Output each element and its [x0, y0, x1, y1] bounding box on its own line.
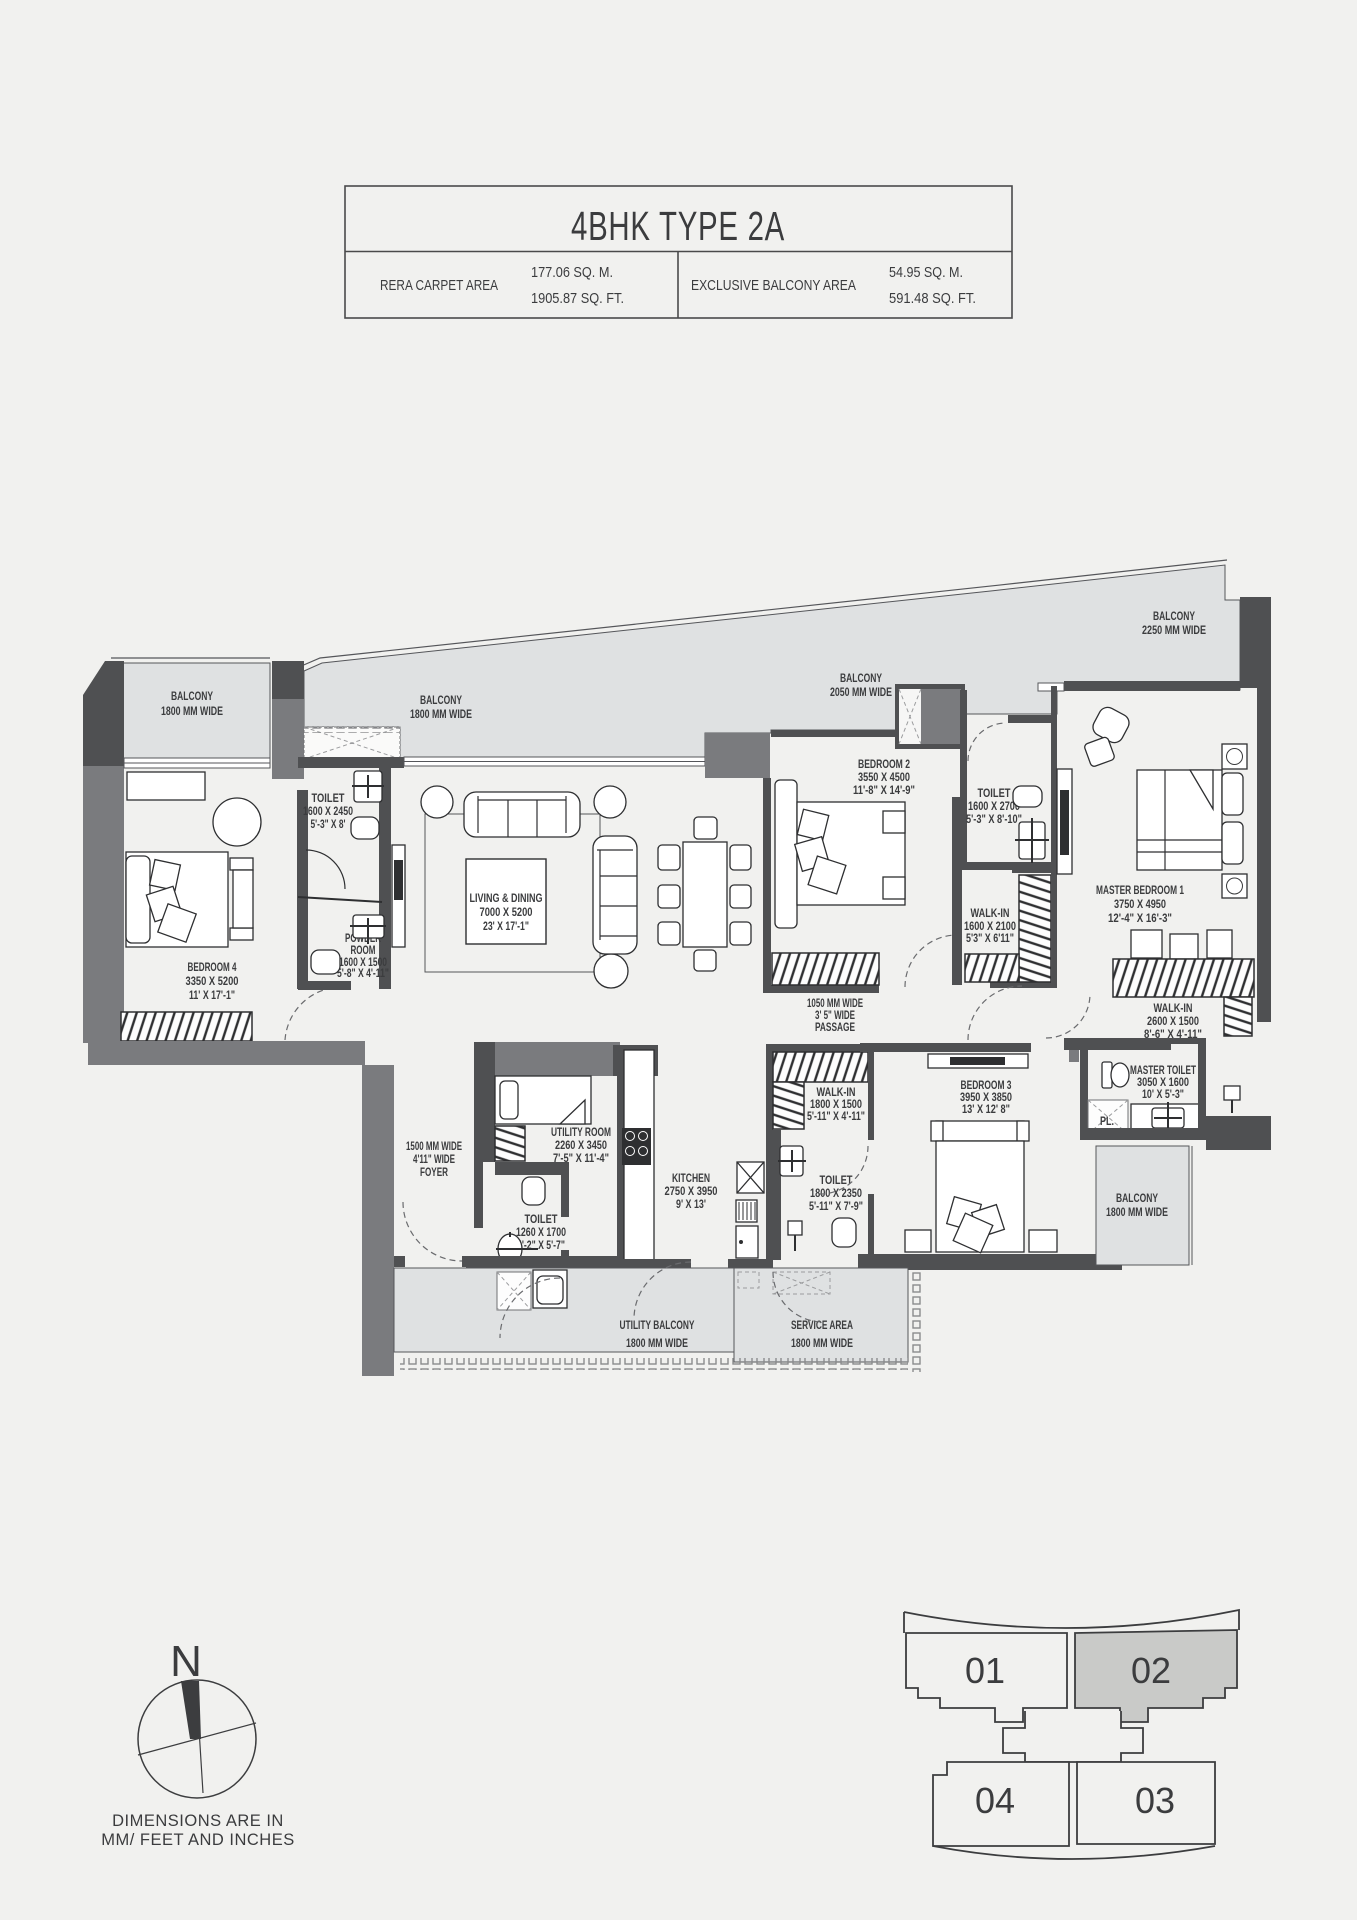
svg-text:PL.: PL.	[1100, 1116, 1114, 1128]
svg-text:1500 MM WIDE: 1500 MM WIDE	[406, 1141, 462, 1153]
svg-text:EXCLUSIVE BALCONY AREA: EXCLUSIVE BALCONY AREA	[691, 277, 856, 294]
svg-text:10' X 5'-3": 10' X 5'-3"	[1142, 1089, 1184, 1101]
svg-text:UTILITY ROOM: UTILITY ROOM	[551, 1127, 611, 1139]
svg-text:5'-11" X 7'-9": 5'-11" X 7'-9"	[809, 1201, 863, 1213]
svg-text:WALK-IN: WALK-IN	[817, 1087, 856, 1099]
svg-text:11'-8" X 14'-9": 11'-8" X 14'-9"	[853, 785, 915, 797]
svg-text:1600 X 2450: 1600 X 2450	[303, 806, 353, 818]
svg-text:3550 X 4500: 3550 X 4500	[858, 772, 910, 784]
svg-text:BALCONY: BALCONY	[1153, 611, 1195, 623]
svg-text:1905.87 SQ. FT.: 1905.87 SQ. FT.	[531, 290, 624, 307]
svg-text:BALCONY: BALCONY	[1116, 1193, 1158, 1205]
svg-text:54.95 SQ. M.: 54.95 SQ. M.	[889, 264, 963, 281]
svg-text:ROOM: ROOM	[351, 945, 376, 957]
svg-text:BALCONY: BALCONY	[840, 673, 882, 685]
svg-text:WALK-IN: WALK-IN	[971, 908, 1010, 920]
svg-text:1800 X 1500: 1800 X 1500	[810, 1099, 862, 1111]
svg-text:BALCONY: BALCONY	[420, 695, 462, 707]
svg-text:5'-8" X 4'-11": 5'-8" X 4'-11"	[337, 968, 389, 980]
svg-text:PASSAGE: PASSAGE	[815, 1022, 855, 1034]
svg-text:BALCONY: BALCONY	[171, 691, 213, 703]
svg-text:1800 MM WIDE: 1800 MM WIDE	[626, 1338, 688, 1350]
svg-text:5'-3" X 8'-10": 5'-3" X 8'-10"	[966, 814, 1022, 826]
svg-text:4'-2" X 5'-7": 4'-2" X 5'-7"	[517, 1240, 565, 1252]
svg-text:2260 X 3450: 2260 X 3450	[555, 1140, 607, 1152]
svg-text:04: 04	[975, 1780, 1015, 1821]
svg-text:FOYER: FOYER	[420, 1167, 448, 1179]
svg-text:23' X 17'-1": 23' X 17'-1"	[483, 921, 529, 933]
svg-text:UTILITY BALCONY: UTILITY BALCONY	[620, 1320, 695, 1332]
svg-text:5'-11" X 4'-11": 5'-11" X 4'-11"	[807, 1111, 865, 1123]
svg-text:BEDROOM 2: BEDROOM 2	[858, 759, 910, 771]
svg-text:3050 X 1600: 3050 X 1600	[1137, 1077, 1189, 1089]
svg-text:13' X 12' 8": 13' X 12' 8"	[962, 1104, 1010, 1116]
svg-text:MM/ FEET AND INCHES: MM/ FEET AND INCHES	[101, 1831, 294, 1849]
svg-text:9' X 13': 9' X 13'	[676, 1199, 706, 1211]
svg-text:1800 MM WIDE: 1800 MM WIDE	[161, 706, 223, 718]
svg-text:DIMENSIONS ARE IN: DIMENSIONS ARE IN	[112, 1812, 284, 1830]
svg-text:LIVING & DINING: LIVING & DINING	[470, 893, 543, 905]
svg-text:5'-3" X 8': 5'-3" X 8'	[311, 819, 346, 831]
svg-text:4BHK TYPE 2A: 4BHK TYPE 2A	[571, 203, 785, 249]
svg-text:03: 03	[1135, 1780, 1175, 1821]
svg-text:SERVICE AREA: SERVICE AREA	[791, 1320, 853, 1332]
svg-text:11' X 17'-1": 11' X 17'-1"	[189, 990, 235, 1002]
svg-text:1600 X 2100: 1600 X 2100	[964, 921, 1016, 933]
svg-text:1800 MM WIDE: 1800 MM WIDE	[1106, 1207, 1168, 1219]
svg-text:N: N	[170, 1637, 202, 1686]
svg-text:1050 MM WIDE: 1050 MM WIDE	[807, 998, 863, 1010]
svg-text:KITCHEN: KITCHEN	[672, 1173, 710, 1185]
svg-text:TOILET: TOILET	[525, 1214, 558, 1226]
svg-text:MASTER TOILET: MASTER TOILET	[1130, 1065, 1196, 1077]
svg-text:BEDROOM 3: BEDROOM 3	[961, 1080, 1012, 1092]
svg-text:1260 X 1700: 1260 X 1700	[516, 1227, 566, 1239]
svg-text:WALK-IN: WALK-IN	[1154, 1003, 1193, 1015]
svg-text:1600 X 2700: 1600 X 2700	[968, 801, 1020, 813]
svg-text:01: 01	[965, 1650, 1005, 1691]
svg-text:2600 X 1500: 2600 X 1500	[1147, 1016, 1199, 1028]
svg-text:7000 X 5200: 7000 X 5200	[480, 907, 533, 919]
svg-text:TOILET: TOILET	[978, 788, 1011, 800]
svg-text:2250 MM WIDE: 2250 MM WIDE	[1142, 625, 1206, 637]
svg-text:1800 X 2350: 1800 X 2350	[810, 1188, 862, 1200]
svg-text:2050 MM WIDE: 2050 MM WIDE	[830, 687, 892, 699]
svg-text:TOILET: TOILET	[312, 793, 345, 805]
svg-text:3750 X 4950: 3750 X 4950	[1114, 899, 1166, 911]
svg-text:BEDROOM 4: BEDROOM 4	[188, 962, 237, 974]
svg-text:12'-4" X 16'-3": 12'-4" X 16'-3"	[1108, 913, 1172, 925]
svg-text:177.06 SQ. M.: 177.06 SQ. M.	[531, 264, 613, 281]
svg-text:1800 MM WIDE: 1800 MM WIDE	[791, 1338, 853, 1350]
svg-text:5'3" X 6'11": 5'3" X 6'11"	[966, 933, 1014, 945]
svg-text:MASTER BEDROOM 1: MASTER BEDROOM 1	[1096, 885, 1184, 897]
svg-text:3950 X 3850: 3950 X 3850	[960, 1092, 1012, 1104]
svg-text:4'11" WIDE: 4'11" WIDE	[413, 1154, 455, 1166]
svg-text:3' 5" WIDE: 3' 5" WIDE	[815, 1010, 855, 1022]
svg-text:3350 X 5200: 3350 X 5200	[186, 976, 239, 988]
svg-text:02: 02	[1131, 1650, 1171, 1691]
svg-text:591.48 SQ. FT.: 591.48 SQ. FT.	[889, 290, 976, 307]
svg-text:RERA CARPET AREA: RERA CARPET AREA	[380, 277, 498, 294]
svg-text:1800 MM WIDE: 1800 MM WIDE	[410, 709, 472, 721]
svg-text:2750 X 3950: 2750 X 3950	[665, 1186, 718, 1198]
